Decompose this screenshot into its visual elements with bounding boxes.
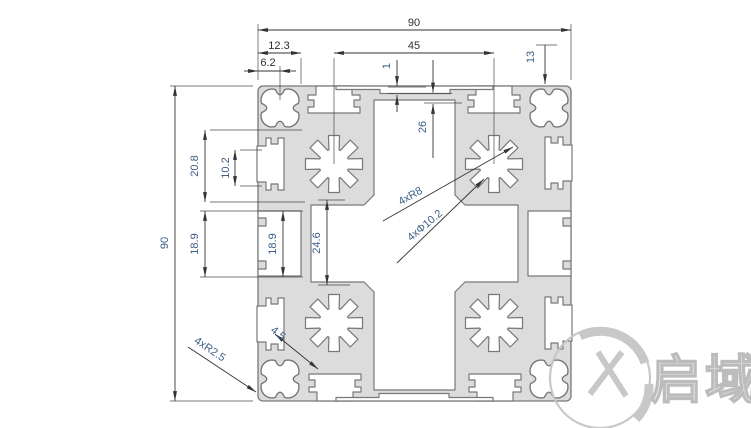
technical-drawing-page: 90 12.3 6.2 45 1 26 13 90 20.8 10.2 18.9… bbox=[0, 0, 751, 428]
dim-20-8: 20.8 bbox=[189, 155, 201, 176]
corner-hole-top-right bbox=[530, 89, 568, 127]
corner-hole-bottom-left bbox=[261, 360, 299, 398]
dim-1: 1 bbox=[381, 63, 393, 69]
dim-13: 13 bbox=[525, 51, 537, 63]
dim-overall-height: 90 bbox=[159, 237, 171, 249]
dim-12-3: 12.3 bbox=[268, 40, 289, 52]
profile-body bbox=[257, 86, 572, 401]
callout-4xR2-5: 4xR2.5 bbox=[192, 335, 228, 364]
dim-26: 26 bbox=[417, 121, 429, 133]
dim-24-6: 24.6 bbox=[311, 232, 323, 253]
watermark-brand-text: 启域 bbox=[650, 352, 751, 410]
dim-18-9-outer: 18.9 bbox=[189, 233, 201, 254]
dim-18-9-inner: 18.9 bbox=[267, 233, 279, 254]
dim-overall-width: 90 bbox=[408, 17, 420, 29]
dim-10-2: 10.2 bbox=[220, 157, 232, 178]
watermark-logo-swirl-top bbox=[580, 331, 645, 363]
aluminum-profile-drawing: 90 12.3 6.2 45 1 26 13 90 20.8 10.2 18.9… bbox=[0, 0, 751, 428]
dim-6-2: 6.2 bbox=[260, 57, 275, 69]
dim-45: 45 bbox=[408, 40, 420, 52]
watermark: 启域 bbox=[550, 328, 751, 428]
watermark-logo-swirl-bottom bbox=[636, 384, 649, 419]
watermark-logo-mark bbox=[590, 352, 626, 396]
